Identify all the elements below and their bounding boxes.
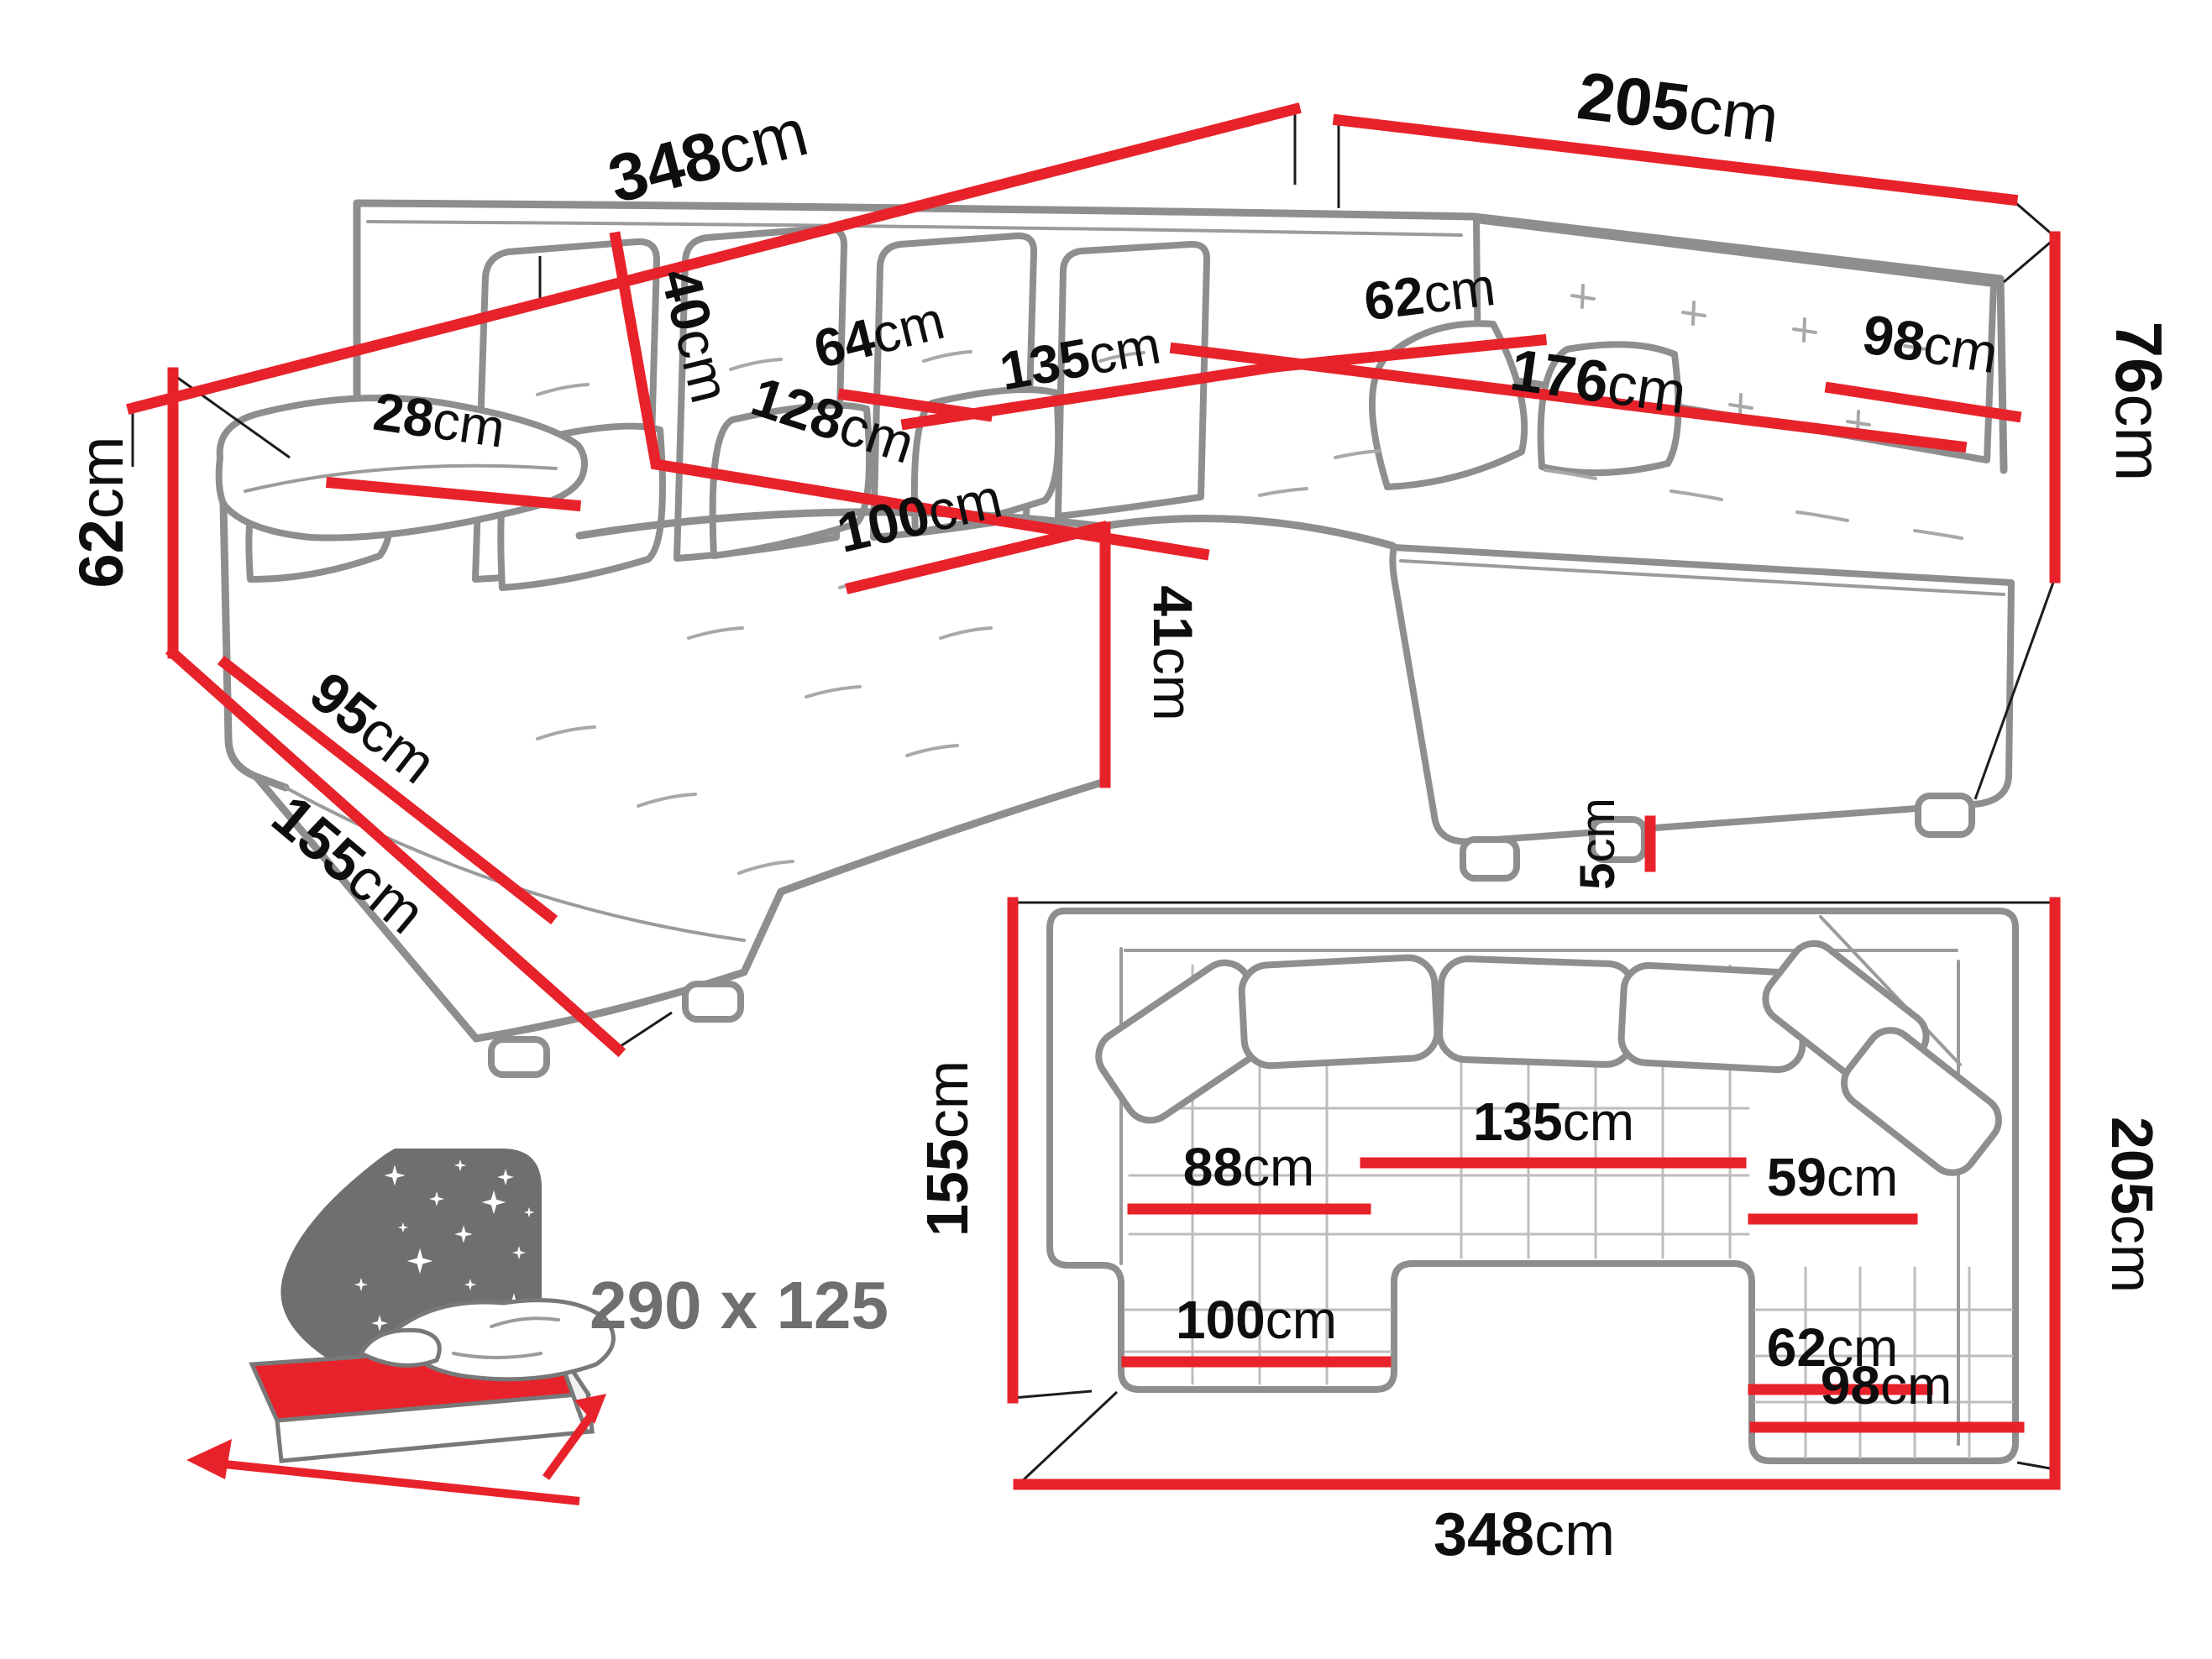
dim-label-back-348: 348cm (601, 94, 815, 217)
plan-label-348: 348cm (1434, 1501, 1615, 1568)
sleeping-area-label: 290 x 125 (590, 1268, 888, 1342)
sleeping-function-icon: 290 x 125 (186, 1149, 888, 1501)
dim-label-left-62: 62cm (66, 437, 136, 589)
plan-label-205: 205cm (2099, 1117, 2165, 1293)
plan-label-88: 88cm (1183, 1137, 1315, 1197)
diagram-canvas: 348cm 205cm 76cm 62cm 155cm 95cm 28cm 40… (0, 0, 2212, 1659)
dimension-sheet: { "document": { "type": "corner-sofa dim… (0, 0, 2212, 1659)
dim-label-205: 205cm (1574, 58, 1783, 157)
plan-label-135: 135cm (1473, 1091, 1634, 1152)
plan-label-98: 98cm (1821, 1355, 1953, 1416)
tuft-marks-chaise (537, 578, 991, 873)
plan-label-59: 59cm (1767, 1147, 1899, 1207)
plan-label-100: 100cm (1176, 1290, 1337, 1350)
dim-label-41: 41cm (1142, 585, 1204, 720)
dim-label-76: 76cm (2102, 322, 2176, 482)
dim-label-5: 5cm (1570, 798, 1625, 890)
plan-label-155: 155cm (915, 1060, 980, 1237)
